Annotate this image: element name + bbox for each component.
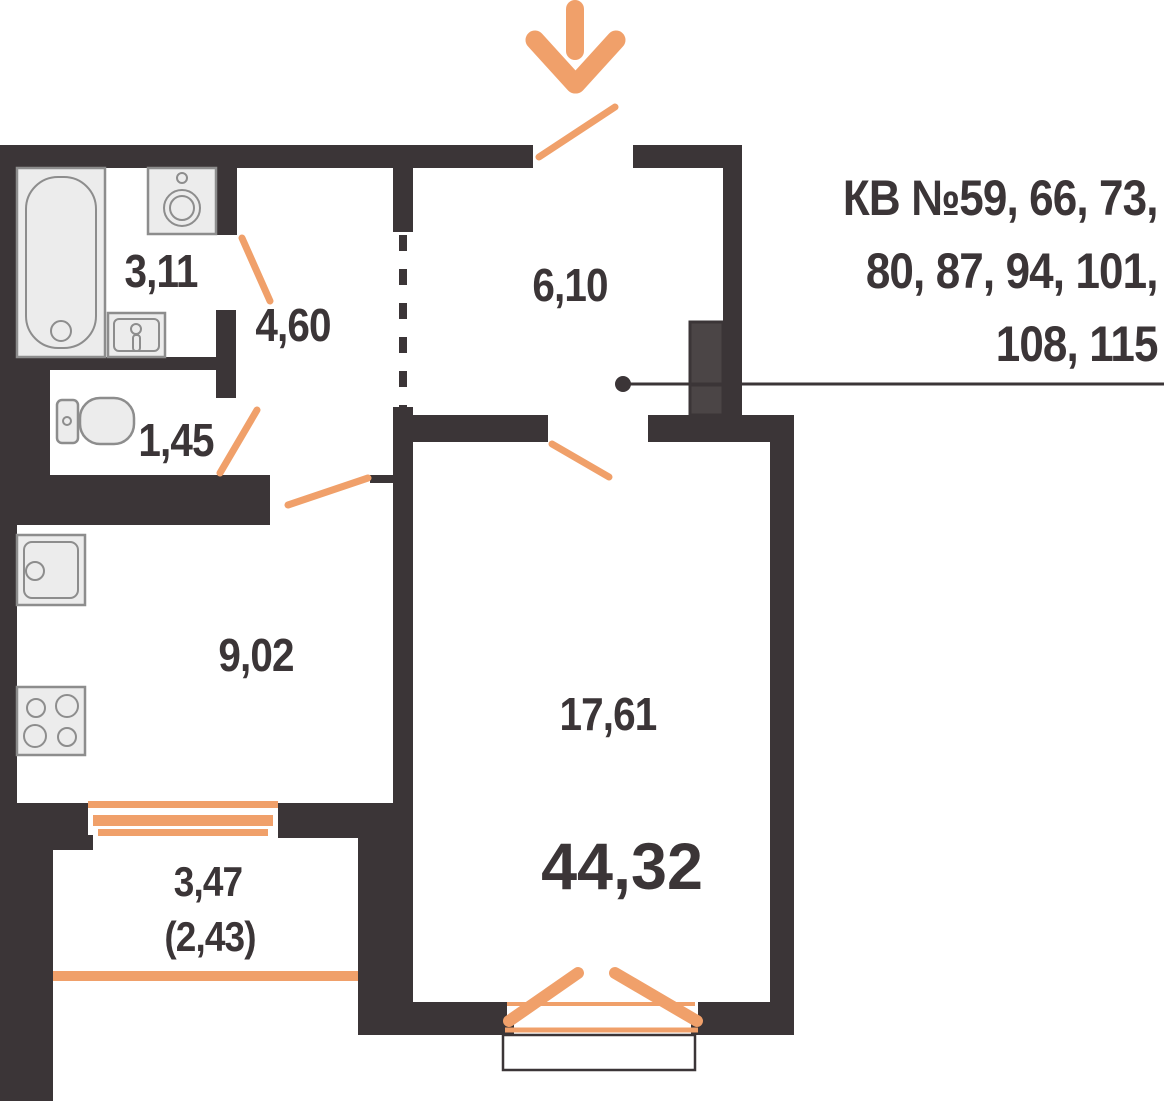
apartment-numbers: КВ №59, 66, 73, 80, 87, 94, 101, 108, 11… xyxy=(843,162,1158,381)
washing-machine-icon xyxy=(148,168,216,234)
wall-kitchen-bottom-right xyxy=(278,803,413,838)
kitchen-window-band xyxy=(98,829,268,836)
kitchen-window-band xyxy=(88,801,278,808)
balcony-door-swing-right xyxy=(615,973,697,1021)
wall-living-top-left xyxy=(413,415,548,442)
kitchen-door-swing xyxy=(288,478,368,505)
kitchen-sink-icon xyxy=(17,535,85,605)
wall-balcony-right xyxy=(358,837,413,1035)
balcony-area-label: 3,47 xyxy=(174,858,242,906)
apartment-numbers-line3: 108, 115 xyxy=(843,308,1158,381)
bathroom-door-swing xyxy=(242,238,270,301)
living-door-swing xyxy=(552,444,609,477)
balcony-threshold xyxy=(503,1035,695,1070)
wall-left-kitchen xyxy=(0,525,17,838)
wall-living-right xyxy=(770,442,794,1035)
wall-wc-bottom xyxy=(17,475,270,525)
wall-wc-right xyxy=(216,310,236,398)
wall-left-upper xyxy=(0,145,17,367)
balcony-glazing-line xyxy=(53,971,358,981)
wall-living-bottom-left xyxy=(413,1002,507,1035)
wall-balcony-step xyxy=(53,835,93,850)
total-area-label: 44,32 xyxy=(541,828,703,904)
wall-entrance-right xyxy=(723,168,742,415)
wall-balcony-left xyxy=(0,835,53,1101)
stove-icon xyxy=(17,687,85,755)
wall-kitchen-bottom-left xyxy=(0,803,88,838)
wall-living-top-right xyxy=(648,415,794,442)
wall-kitchen-door-stub xyxy=(370,475,393,483)
floor-plan: 3,11 4,60 6,10 1,45 9,02 17,61 44,32 3,4… xyxy=(0,0,1164,1101)
room-label-wc: 1,45 xyxy=(138,413,213,467)
apartment-numbers-line2: 80, 87, 94, 101, xyxy=(843,235,1158,308)
balcony-door-swing-left xyxy=(509,973,578,1021)
room-label-entrance-hall: 6,10 xyxy=(532,258,607,312)
wall-top-left xyxy=(0,145,533,168)
room-label-living-room: 17,61 xyxy=(560,687,657,741)
wall-living-bottom-right xyxy=(698,1002,794,1035)
walls xyxy=(0,145,794,1101)
bathtub-icon xyxy=(17,168,105,357)
room-label-bathroom: 3,11 xyxy=(124,244,197,298)
balcony-reduced-area-label: (2,43) xyxy=(164,913,255,961)
kitchen-window-band xyxy=(93,815,273,826)
wall-bathroom-right-upper xyxy=(216,168,237,235)
entrance-arrow-icon xyxy=(535,0,616,84)
wc-door-swing xyxy=(220,410,257,473)
apartment-numbers-line1: КВ №59, 66, 73, xyxy=(843,162,1158,235)
room-label-kitchen: 9,02 xyxy=(218,628,293,682)
room-label-hallway: 4,60 xyxy=(255,298,330,352)
toilet-icon xyxy=(57,398,134,444)
wall-top-right xyxy=(633,145,742,168)
bathroom-sink-icon xyxy=(108,313,165,357)
wall-hall-stub xyxy=(393,160,413,232)
ventilation-shaft-icon xyxy=(690,322,723,415)
entrance-door-swing xyxy=(539,107,615,157)
